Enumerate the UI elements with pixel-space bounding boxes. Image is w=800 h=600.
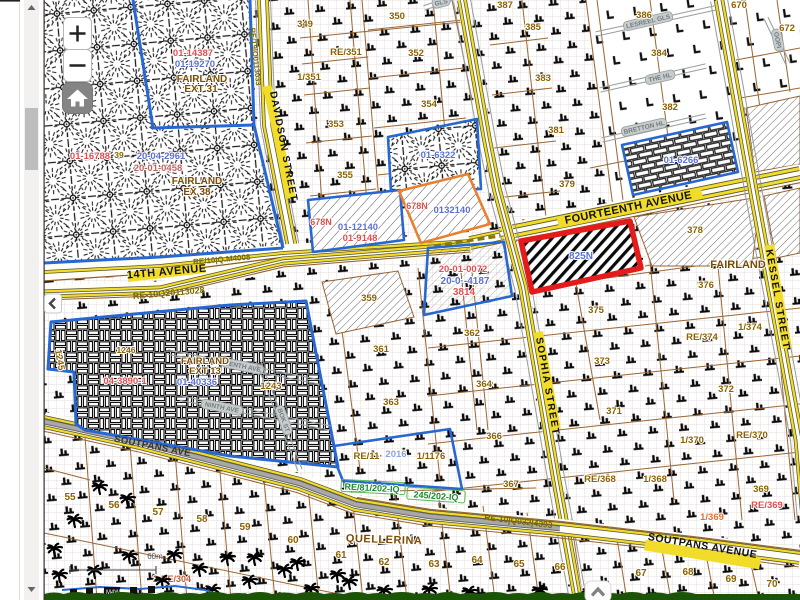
svg-text:367: 367 (503, 479, 519, 490)
svg-text:387: 387 (497, 0, 513, 11)
svg-text:371: 371 (606, 406, 623, 417)
svg-text:350: 350 (389, 11, 405, 22)
svg-text:RE/368: RE/368 (584, 474, 616, 485)
svg-text:56: 56 (108, 500, 120, 511)
svg-text:20-04-2961: 20-04-2961 (137, 151, 186, 162)
svg-text:01-6322: 01-6322 (421, 150, 456, 161)
svg-text:EXT 13: EXT 13 (189, 366, 221, 377)
svg-text:349: 349 (297, 19, 313, 30)
svg-text:RE/369: RE/369 (751, 500, 783, 511)
svg-text:20-01-0072: 20-01-0072 (439, 264, 488, 275)
svg-text:04-3890-1: 04-3890-1 (103, 376, 147, 387)
svg-text:RE/370: RE/370 (736, 430, 768, 441)
svg-text:1/351: 1/351 (297, 72, 321, 83)
svg-text:01-40336: 01-40336 (177, 377, 217, 388)
svg-text:381: 381 (548, 125, 565, 136)
svg-text:67: 67 (635, 568, 647, 579)
svg-text:354: 354 (421, 99, 438, 110)
svg-text:352: 352 (408, 48, 424, 59)
svg-text:670: 670 (731, 0, 747, 11)
svg-text:364: 364 (476, 379, 493, 390)
svg-text:20-0·-4187: 20-0·-4187 (441, 276, 490, 287)
svg-text:66: 66 (554, 562, 566, 573)
svg-text:RE/374: RE/374 (686, 332, 718, 343)
svg-text:39: 39 (114, 150, 124, 160)
svg-text:68: 68 (682, 567, 694, 578)
svg-text:01-14387: 01-14387 (173, 48, 213, 59)
svg-text:376: 376 (698, 280, 714, 291)
svg-text:1/369: 1/369 (700, 512, 724, 523)
svg-text:372: 372 (718, 384, 734, 395)
svg-text:64: 64 (471, 555, 483, 566)
svg-text:62: 62 (378, 557, 390, 568)
svg-text:1243: 1243 (260, 381, 281, 392)
svg-text:1/368: 1/368 (643, 474, 667, 485)
svg-text:01-16788: 01-16788 (70, 151, 110, 162)
svg-text:359: 359 (361, 293, 377, 304)
svg-text:59: 59 (239, 522, 251, 533)
svg-text:RE/351: RE/351 (330, 47, 362, 58)
svg-text:385: 385 (525, 22, 542, 33)
svg-text:355: 355 (337, 170, 354, 181)
svg-text:678N: 678N (406, 201, 428, 211)
svg-text:69: 69 (725, 574, 737, 585)
svg-text:0132140: 0132140 (434, 205, 471, 216)
svg-text:58: 58 (196, 514, 208, 525)
svg-text:60m: 60m (147, 552, 163, 561)
svg-text:382: 382 (662, 102, 678, 113)
svg-text:FAIRLAND: FAIRLAND (710, 259, 766, 271)
svg-text:672: 672 (779, 23, 795, 34)
svg-text:01-6266: 01-6266 (664, 155, 699, 166)
svg-text:363: 363 (383, 397, 399, 408)
svg-text:1/370: 1/370 (680, 435, 704, 446)
svg-text:369: 369 (753, 484, 769, 495)
svg-text:366: 366 (486, 431, 502, 442)
svg-text:383: 383 (535, 73, 551, 84)
svg-text:20-01-0458: 20-01-0458 (134, 163, 183, 174)
svg-text:386: 386 (636, 10, 652, 21)
svg-text:01-9148: 01-9148 (343, 233, 378, 244)
svg-text:EXT 31: EXT 31 (184, 84, 218, 95)
svg-text:1/374: 1/374 (738, 322, 762, 333)
svg-text:678N: 678N (310, 217, 332, 227)
svg-text:65: 65 (513, 559, 525, 570)
svg-text:FAIRLAND: FAIRLAND (172, 176, 223, 187)
svg-text:361: 361 (373, 344, 390, 355)
svg-text:01-12140: 01-12140 (338, 222, 378, 233)
svg-text:01-19270: 01-19270 (175, 59, 215, 70)
svg-text:60: 60 (287, 535, 299, 546)
svg-text:2016: 2016 (385, 449, 406, 460)
svg-text:379: 379 (559, 179, 575, 190)
svg-text:1/1176: 1/1176 (417, 451, 446, 462)
svg-text:1246: 1246 (117, 345, 136, 355)
svg-text:353: 353 (328, 119, 344, 130)
svg-text:61: 61 (335, 550, 347, 561)
svg-text:375: 375 (588, 305, 605, 316)
svg-text:825N: 825N (569, 251, 593, 262)
svg-text:362: 362 (464, 328, 480, 339)
svg-text:3814: 3814 (453, 287, 476, 298)
svg-text:373: 373 (594, 356, 610, 367)
svg-text:RE/11·: RE/11· (353, 451, 382, 462)
svg-text:70: 70 (766, 579, 778, 590)
svg-text:55: 55 (64, 492, 76, 503)
svg-text:EX 38: EX 38 (183, 187, 211, 198)
svg-text:378: 378 (687, 225, 703, 236)
svg-text:57: 57 (152, 507, 164, 518)
svg-text:384: 384 (651, 48, 668, 59)
svg-text:63: 63 (428, 559, 440, 570)
